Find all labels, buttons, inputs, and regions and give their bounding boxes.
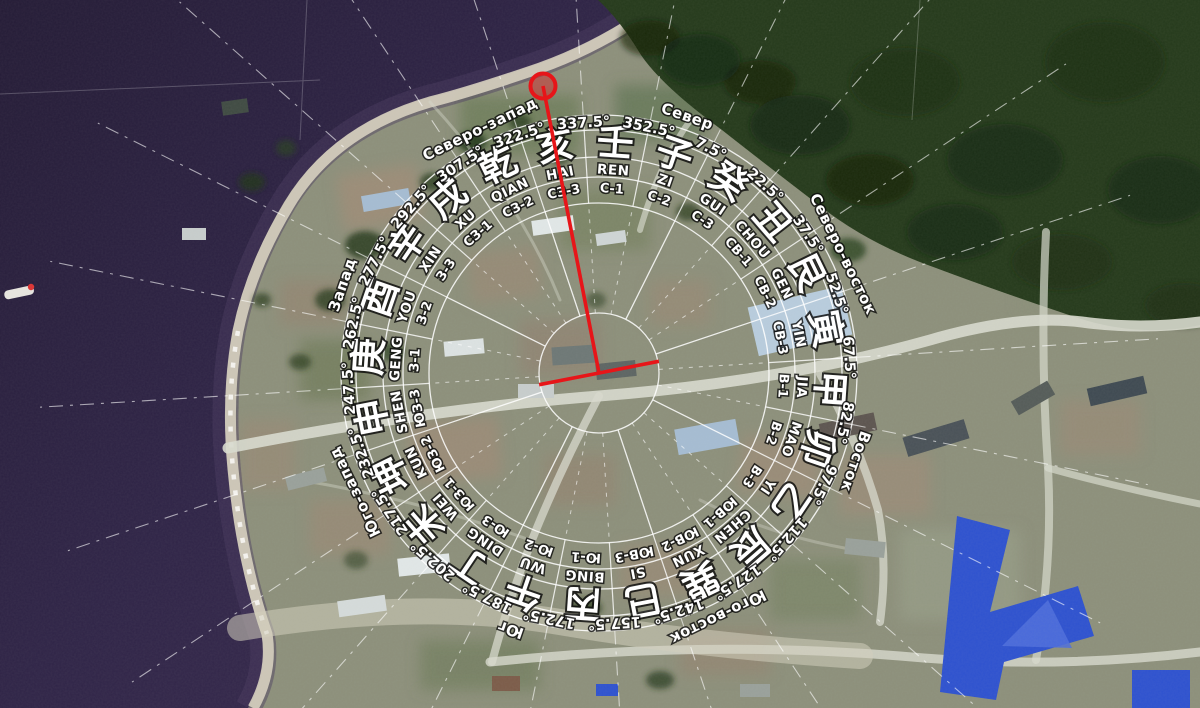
inner-spoke-line (523, 427, 572, 525)
boundary-extension-line (565, 0, 583, 115)
mountain-pinyin-label: GENG (387, 336, 406, 382)
boundary-extension-line (830, 488, 1100, 623)
inner-radial-dashed (611, 206, 633, 314)
sector-code-label: В-2 (762, 419, 784, 447)
map-viewport: 子ZIС-2癸GUIС-3丑CHOUСВ-1艮GENСВ-2寅YINСВ-3甲J… (0, 0, 1200, 708)
boundary-extension-line (844, 195, 1130, 291)
degree-label: 22.5° (743, 166, 786, 206)
boundary-extension-line (349, 604, 484, 708)
boundary-extension-line (814, 64, 1066, 231)
boundary-extension-line (650, 0, 710, 120)
degree-label: 7.5° (692, 135, 729, 164)
sector-code-label: З-2 (414, 299, 436, 326)
boundary-extension-line (770, 0, 970, 180)
inner-spoke-line (438, 392, 542, 427)
sector-code-label: СВ-3 (769, 320, 790, 356)
inner-radial-dashed (659, 363, 769, 370)
boundary-extension-line (98, 123, 368, 258)
boundary-extension-line (852, 424, 1148, 484)
boundary-extension-line (857, 339, 1158, 357)
boundary-extension-line (68, 455, 354, 551)
degree-label: 337.5° (557, 114, 611, 133)
boundary-extension-line (792, 544, 1018, 708)
degree-label: 67.5° (839, 336, 858, 380)
degree-label: 247.5° (340, 361, 359, 415)
inner-radial-dashed (644, 413, 726, 486)
inner-radial-dashed (432, 339, 540, 361)
cardinal-direction-label: Юг (495, 617, 526, 643)
degree-label: 157.5° (587, 613, 641, 632)
inner-radial-dashed (472, 260, 554, 333)
mountain-pinyin-label: BING (564, 566, 605, 585)
mountain-pinyin-label: JIA (793, 375, 811, 399)
inner-spoke-line (653, 400, 751, 449)
boundary-extension-line (132, 515, 384, 682)
inner-radial-dashed (658, 385, 766, 407)
degree-label: 97.5° (806, 462, 840, 508)
sector-code-label: Ю-1 (571, 548, 602, 565)
sector-code-label: З-1 (407, 348, 424, 373)
inner-spoke-line (626, 221, 675, 319)
mountain-pinyin-label: SI (628, 563, 647, 582)
sector-code-label: В-1 (774, 373, 791, 398)
inner-radial-dashed (486, 418, 559, 500)
inner-radial-dashed (429, 377, 539, 384)
sector-code-label: С-1 (599, 181, 624, 198)
inner-radial-dashed (589, 203, 596, 313)
boundary-extension-line (714, 0, 849, 142)
inner-spoke-line (656, 319, 760, 354)
boundary-extension-line (615, 631, 633, 708)
mountain-pinyin-label: REN (596, 161, 629, 179)
boundary-extension-line (50, 261, 346, 321)
inner-radial-dashed (603, 433, 610, 543)
inner-radial-dashed (565, 432, 587, 540)
inner-spoke-line (447, 297, 545, 346)
boundary-extension-line (290, 0, 457, 158)
sector-code-label: ЮЗ-3 (407, 388, 429, 429)
boundary-extension-line (228, 566, 428, 708)
luopan-compass-overlay: 子ZIС-2癸GUIС-3丑CHOUСВ-1艮GENСВ-2寅YINСВ-3甲J… (0, 0, 1200, 708)
map-pin[interactable] (531, 74, 556, 99)
sector-code-label: ЮВ-3 (613, 542, 655, 564)
boundary-extension-line (180, 2, 406, 202)
boundary-extension-line (40, 389, 341, 407)
sector-code-label: С-2 (645, 188, 673, 210)
boundary-extension-line (741, 588, 908, 708)
inner-spoke-line (618, 430, 653, 534)
inner-radial-dashed (639, 246, 712, 328)
inner-spoke-line (545, 212, 580, 316)
